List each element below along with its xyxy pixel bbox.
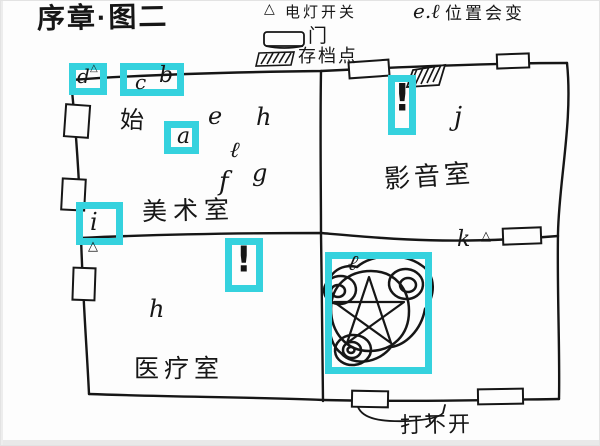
door-bottom-1 [352,391,388,408]
scan-edge-bottom [1,440,599,445]
scan-edge-left [1,1,3,445]
highlight-box-i [76,202,123,245]
switch-triangle-i: △ [88,240,98,253]
marker-k: k [457,229,470,251]
legend-light-switch-symbol: △ [264,2,275,16]
marker-e: e [208,104,222,128]
legend-light-switch-label: 电灯开关 [285,5,357,20]
switch-triangle-k: △ [481,230,491,243]
door-left-3 [72,268,95,301]
marker-alert-av: ! [394,80,410,118]
legend-moving-keys: e.ℓ [413,1,440,21]
door-bottom-2 [478,389,523,405]
legend-moving-label: 位置会变 [445,5,525,22]
marker-j: j [454,104,462,130]
map-walls [71,63,568,401]
locked-door-note: 打不开 [400,413,472,436]
door-left-1 [64,104,90,138]
room-label-medical: 医疗室 [134,357,224,382]
highlight-box-ritual [325,252,432,374]
legend-save-label: 存档点 [298,47,358,65]
highlight-box-cb [120,63,184,96]
legend-door-label: 门 [308,27,327,46]
room-label-art: 美术室 [142,198,236,225]
marker-h-medical: h [149,297,164,321]
marker-f: f [219,169,229,195]
wall-center-vertical [321,71,323,401]
page-title: 序章·图二 [37,3,169,33]
room-label-av: 影音室 [383,160,475,192]
marker-start: 始 [120,109,145,134]
switch-triangle-d: △ [90,64,98,74]
marker-i: i [90,210,98,234]
door-top-2 [497,53,529,68]
marker-b: b [159,65,173,87]
hand-drawn-map: 序章·图二 △ 电灯开关 e.ℓ 位置会变 门 存档点 美术室 影音室 医疗室 … [0,0,600,446]
marker-h-art: h [256,105,271,129]
marker-a: a [177,126,190,148]
marker-c: c [135,72,146,92]
marker-g: g [252,161,267,185]
marker-d: d [77,66,90,86]
marker-alert-art: ! [236,242,252,278]
wall-right [558,63,569,399]
door-mid-right [503,227,542,244]
legend-save-icon [256,52,294,66]
